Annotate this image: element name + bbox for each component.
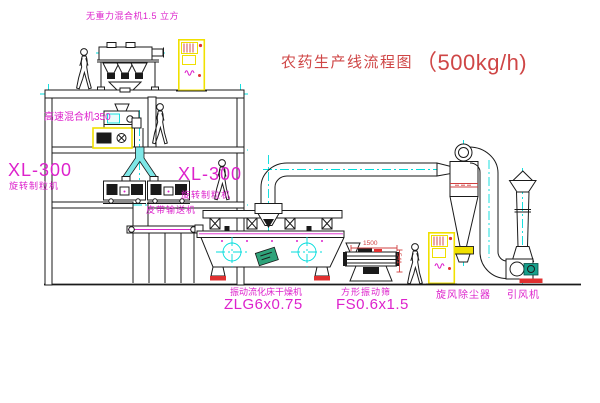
control-cabinet-lower (426, 233, 457, 284)
label-fan: 引风机 (507, 291, 540, 301)
label-granulator-model-center: XL-300 (178, 165, 242, 183)
granulator-left (103, 177, 146, 204)
dim-sieve-length: 1500 (363, 241, 377, 248)
label-granulator-left: 旋转制粒机 (9, 182, 59, 191)
worker-ground-floor (408, 244, 423, 284)
dryer-feet (210, 267, 330, 281)
gravity-mixer (97, 43, 164, 93)
label-belt-conveyor: 皮带输送机 (146, 206, 196, 215)
high-speed-mixer (93, 104, 143, 148)
label-cyclone: 旋风除尘器 (436, 291, 491, 301)
mixer-hoppers (103, 63, 147, 79)
downcomer-pipe (480, 173, 507, 279)
fluid-bed-dryer (197, 204, 344, 281)
flow-diagram-page: 农药生产线流程图 （500kg/h) 无重力混合机1.5 立方 高速混合机350… (0, 0, 600, 403)
belt-conveyor (127, 225, 203, 283)
label-dryer-model: ZLG6x0.75 (224, 297, 303, 312)
control-cabinet-upper (176, 40, 207, 91)
title-text: 农药生产线流程图 (281, 51, 413, 72)
cyclone-separator (450, 144, 498, 262)
title-capacity: （500kg/h) (415, 45, 527, 77)
exhaust-stack (510, 171, 537, 262)
label-granulator-model-left: XL-300 (8, 161, 72, 179)
diagram-title: 农药生产线流程图 （500kg/h) (281, 45, 527, 77)
dim-sieve-height: 541 (395, 253, 402, 264)
worker-top-floor (77, 49, 92, 89)
label-granulator-center: 旋转制粒机 (181, 191, 231, 200)
label-gravity-mixer: 无重力混合机1.5 立方 (86, 12, 179, 21)
induced-draft-fan (506, 259, 543, 283)
label-sieve-model: FS0.6x1.5 (336, 297, 409, 312)
label-high-speed-mixer: 高速混合机350 (44, 113, 111, 123)
